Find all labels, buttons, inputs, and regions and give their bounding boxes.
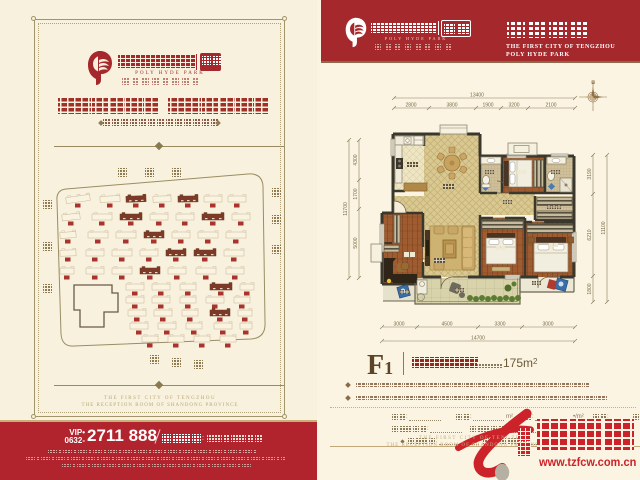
svg-text:13400: 13400	[470, 93, 484, 99]
svg-text:1900: 1900	[482, 103, 493, 109]
svg-text:3000: 3000	[542, 322, 553, 328]
svg-text:5000: 5000	[353, 237, 359, 248]
svg-text:4300: 4300	[353, 154, 359, 165]
svg-text:2800: 2800	[405, 103, 416, 109]
svg-text:11700: 11700	[343, 202, 349, 216]
svg-text:3190: 3190	[587, 168, 593, 179]
svg-text:11100: 11100	[601, 221, 607, 234]
svg-text:3000: 3000	[393, 322, 404, 328]
svg-text:6210: 6210	[587, 229, 593, 240]
svg-text:1700: 1700	[353, 188, 359, 199]
svg-text:3300: 3300	[494, 322, 505, 328]
svg-text:4500: 4500	[441, 322, 452, 328]
svg-text:14700: 14700	[471, 336, 485, 342]
svg-text:1800: 1800	[587, 283, 593, 294]
svg-text:3200: 3200	[508, 103, 519, 109]
svg-text:3800: 3800	[446, 103, 457, 109]
svg-text:2100: 2100	[545, 103, 556, 109]
